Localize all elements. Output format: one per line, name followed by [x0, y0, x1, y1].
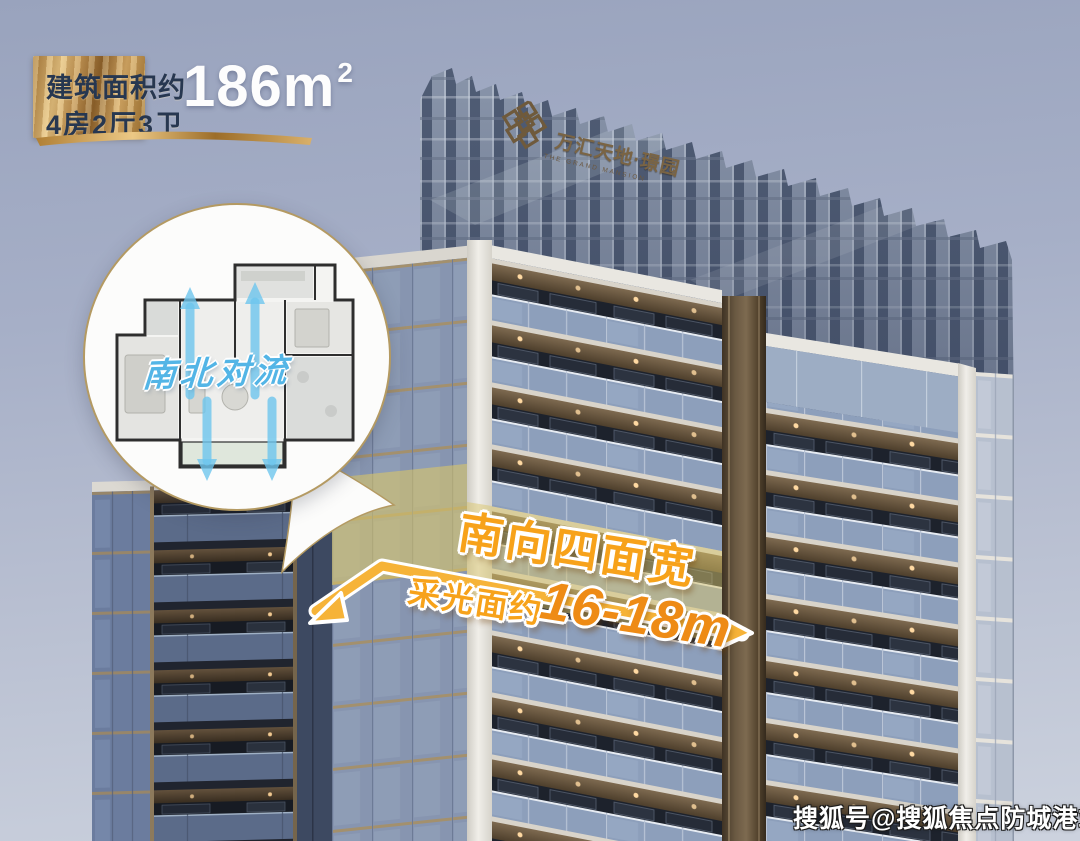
area-value: 186m2 [183, 53, 352, 120]
gold-underline [30, 125, 330, 155]
area-unit: m [283, 54, 336, 119]
area-number: 186 [183, 54, 283, 119]
right-corner-pillar [958, 363, 976, 841]
main-tower-right-wing [766, 333, 958, 841]
promo-image: 万汇天地·璟园 THE GRAND MANSION [0, 0, 1080, 841]
area-power: 2 [337, 57, 354, 88]
watermark: 搜狐号@搜狐焦点防城港站 [793, 799, 1080, 835]
airflow-label: 南北对流 [141, 343, 292, 396]
area-label: 建筑面积约 [46, 66, 186, 105]
right-side-return [976, 372, 1014, 841]
